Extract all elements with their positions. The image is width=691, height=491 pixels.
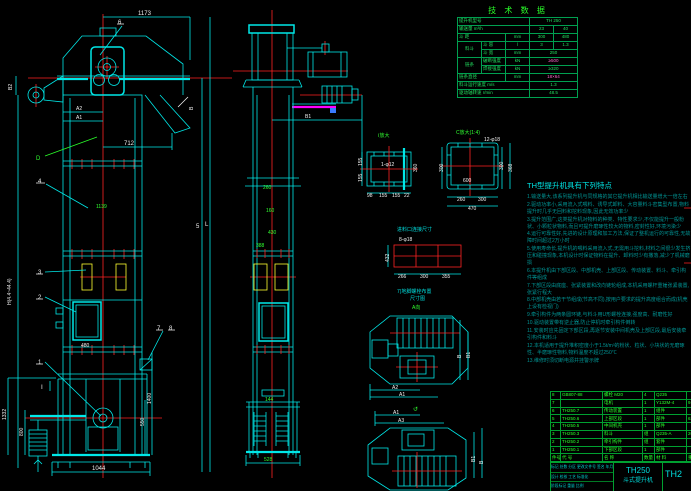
detail-c-inner: 600 — [463, 178, 472, 184]
part-no: 7 — [551, 399, 561, 407]
plan-view-top: B B1 A2 A1 — [370, 316, 472, 400]
balloon-2: 2 — [38, 295, 42, 301]
balloon-6: 6 — [118, 20, 122, 26]
table-row: 5 TH250.6 上部区段 1 部件 63.5 — [551, 415, 691, 423]
part-qty: 1 — [643, 423, 655, 431]
header-weight: 重量 — [687, 454, 691, 462]
dim-a1: A1 — [76, 115, 82, 121]
tech-data-table: 技 术 数 据 提升机型号 TH 250 输送量 m³/h 23 40 斗 距 … — [457, 5, 579, 98]
dim-left-a: 1332 — [2, 409, 8, 420]
part-name: 牵引构件 — [603, 438, 643, 446]
part-weight — [687, 407, 691, 415]
feature-line: 3.提升范围广,这类提升机对物料的种类、特性要求少,不仅能提升一般粉状、小颗粒状… — [527, 217, 691, 231]
tech-group: 链条 — [458, 58, 482, 74]
part-code: TH250.6 — [561, 415, 603, 423]
tech-value: 18×64 — [530, 74, 578, 82]
balloon-8: 8 — [169, 326, 173, 332]
outlet-detail: 进料口连接尺寸 8-φ18 432 266 300 355 — [385, 226, 461, 280]
front-view: 1173 712 A2 A1 B2 H(4.4~44.4) B 5 L 1139… — [2, 11, 232, 478]
drawing-number: TH2 — [663, 463, 691, 491]
balloon-1: 1 — [38, 360, 42, 366]
table-row: 链条 破断强度 kN ≥500 — [458, 58, 578, 66]
header-material: 材 料 — [655, 454, 687, 462]
part-no: 8 — [551, 392, 561, 400]
rotate-view-icon: ↺ — [413, 406, 418, 413]
dim-b2: B2 — [8, 84, 14, 90]
tech-value: 48.5 — [530, 90, 578, 98]
table-row: 1 TH250.1 下部区段 1 部件 — [551, 446, 691, 454]
dim-left-b: 800 — [19, 427, 25, 436]
part-no: 6 — [551, 407, 561, 415]
outlet-left: 432 — [385, 253, 391, 262]
detail-i-left-b: 155 — [358, 173, 364, 182]
revision-row: 标记 处数 分区 更改文件号 签名 年月日 — [551, 463, 613, 473]
table-row: 2 TH250.2 牵引构件 组 套件 — [551, 438, 691, 446]
part-name: 传动装置 — [603, 407, 643, 415]
tech-unit: mm — [506, 74, 530, 82]
feature-line: 10.驱动装置带有逆止器,防止停机时牵引构件倒转 — [527, 320, 691, 327]
header-name: 名 称 — [603, 454, 643, 462]
dim-boot-shaft: 550 — [140, 417, 146, 426]
balloon-7: 7 — [157, 326, 161, 332]
detail-c-view: C放大(1:4) 12-φ18 600 300 368 300 260 300 … — [439, 129, 514, 212]
part-code: TH250.3 — [561, 430, 603, 438]
part-no: 3 — [551, 430, 561, 438]
part-qty: 1 — [643, 446, 655, 454]
part-material: 部件 — [655, 423, 687, 431]
features-notes: TH型提升机具有下列特点 1.输送量大,该系列提升机与同规格的其它提升机相比输送… — [527, 180, 691, 390]
detail-i-hole: 1-φ12 — [381, 162, 394, 168]
part-code — [561, 399, 603, 407]
table-row: 7 电机 1 Y132M-4 9.06 — [551, 399, 691, 407]
detail-c-right-a: 300 — [499, 161, 505, 170]
table-row: 斗 距 mm 300 480 — [458, 34, 578, 42]
feature-line: 11.安装时应先固定下部区段,再逐节安装中间机壳及上部区段,最后安装牵引构件和料… — [527, 328, 691, 342]
table-row: 提升机型号 TH 250 — [458, 18, 578, 26]
plan-bottom-a1: A1 — [393, 410, 399, 416]
part-no: 5 — [551, 415, 561, 423]
features-title: TH型提升机具有下列特点 — [527, 180, 691, 191]
plan-bottom-a3: A3 — [398, 418, 404, 424]
cad-drawing-sheet: 1173 712 A2 A1 B2 H(4.4~44.4) B 5 L 1139… — [0, 0, 691, 491]
part-weight: 63.5 — [687, 415, 691, 423]
part-code: TH250.5 — [561, 423, 603, 431]
part-material: Q235-A — [655, 430, 687, 438]
part-weight — [687, 423, 691, 431]
part-qty: 1 — [643, 415, 655, 423]
tech-unit: mm — [506, 50, 530, 58]
part-name: 螺栓 M20 — [603, 392, 643, 400]
tech-value: 3 — [530, 42, 554, 50]
dim-side-base: 528 — [264, 457, 273, 463]
part-weight — [687, 392, 691, 400]
tech-value: ≥500 — [530, 58, 578, 66]
outlet-label: 进料口连接尺寸 — [397, 226, 432, 233]
layout-label-1: 7)地脚螺栓布置 — [397, 288, 431, 295]
detail-i-bot-a: 98 — [367, 193, 373, 199]
tech-unit: l — [506, 42, 530, 50]
part-material: Q235 — [655, 392, 687, 400]
tech-value: 1.3 — [554, 42, 578, 50]
dim-door: 480 — [81, 343, 90, 349]
part-no: 4 — [551, 423, 561, 431]
dim-pitch: 1139 — [96, 204, 107, 210]
header-no: 件号 — [551, 454, 561, 462]
tech-value: 250 — [530, 50, 578, 58]
tech-label: 破断强度 — [482, 58, 506, 66]
part-name: 料斗 — [603, 430, 643, 438]
tech-unit: kN — [506, 66, 530, 74]
plan-top-a1: A1 — [399, 392, 405, 398]
balloon-d: D — [36, 156, 41, 162]
table-row: 4 TH250.5 中间机壳 1 部件 — [551, 423, 691, 431]
part-code: GB807-88 — [561, 392, 603, 400]
tech-unit: kN — [506, 58, 530, 66]
parts-header-row: 件号 代 号 名 称 数量 材 料 重量 — [551, 454, 691, 462]
part-weight — [687, 446, 691, 454]
part-material: 部件 — [655, 415, 687, 423]
dim-side-width: 388 — [256, 243, 265, 249]
part-code: TH250.7 — [561, 407, 603, 415]
tech-value: 480 — [554, 34, 578, 42]
part-material: 部件 — [655, 446, 687, 454]
part-weight — [687, 438, 691, 446]
tech-label: 焊接强度 — [482, 66, 506, 74]
detail-i-bot-b: 155 — [379, 193, 388, 199]
detail-i-label: Ⅰ放大 — [378, 132, 389, 139]
header-qty: 数量 — [643, 454, 655, 462]
feature-line: 8.中部机壳由若干节组成(节高不同),按用户要求的提升高度组合而成(机壳上设有检… — [527, 297, 691, 311]
plan-bottom-b1: B1 — [471, 456, 477, 462]
dim-overall-width: 1173 — [138, 11, 152, 17]
outlet-holes: 8-φ18 — [399, 237, 412, 243]
dim-b1: B1 — [305, 114, 311, 120]
section-mark: Ⅰ — [41, 385, 43, 391]
feature-line: 6.本提升机由下部区段、中部机壳、上部区段、传动装置、料斗、牵引构件等组成 — [527, 268, 691, 282]
side-view: B1 260 160 430 388 144 528 — [233, 10, 362, 478]
tech-label: 输送量 m³/h — [458, 26, 530, 34]
detail-c-bot-b: 300 — [478, 197, 487, 203]
dim-side-neck: 160 — [266, 208, 275, 214]
tech-label: 驱动轴转速 r/min — [458, 90, 530, 98]
detail-i-view: Ⅰ放大 1-φ12 155 155 360 98 155 155 22 — [358, 132, 419, 199]
tech-label: 料斗运行速度 m/s — [458, 82, 530, 90]
feature-line: 7.下部区段由底座、张紧装置和改向链轮组成,本机采用螺杆重锤张紧装置,张紧行程大 — [527, 283, 691, 297]
outlet-bot-c: 355 — [442, 274, 451, 280]
tech-label: 斗 距 — [458, 34, 506, 42]
plan-top-b1: B1 — [466, 352, 472, 358]
detail-c-label: C放大(1:4) — [456, 129, 480, 136]
part-name: 电机 — [603, 399, 643, 407]
detail-i-left-a: 155 — [358, 157, 364, 166]
header-code: 代 号 — [561, 454, 603, 462]
view-a-label: A向 — [412, 304, 420, 311]
table-row: 3 TH250.3 料斗 组 Q235-A 208 — [551, 430, 691, 438]
feature-line: 1.输送量大,该系列提升机与同规格的其它提升机相比输送量增大一倍左右 — [527, 194, 691, 201]
tech-value: ≥320 — [530, 66, 578, 74]
tech-label: 斗 容 — [482, 42, 506, 50]
part-no: 1 — [551, 446, 561, 454]
part-qty: 组 — [643, 438, 655, 446]
part-qty: 组 — [643, 430, 655, 438]
title-block-revision-area: 标记 处数 分区 更改文件号 签名 年月日 设计 校核 工艺 标准化 阶段标记 … — [551, 463, 614, 491]
table-row: 输送量 m³/h 23 40 — [458, 26, 578, 34]
detail-c-holes: 12-φ18 — [484, 137, 500, 143]
part-qty: 1 — [643, 407, 655, 415]
tech-value: 300 — [530, 34, 554, 42]
part-material: 套件 — [655, 438, 687, 446]
tech-value: 40 — [554, 26, 578, 34]
part-code: TH250.2 — [561, 438, 603, 446]
detail-i-bot-d: 22 — [404, 193, 410, 199]
detail-i-right: 360 — [413, 163, 419, 172]
feature-line: 12.本机适用于提升堆积密度小于1.5t/m³的粉状、粒状、小块状的无磨琢性、半… — [527, 343, 691, 357]
dim-side-top: 260 — [263, 185, 272, 191]
stage-row: 阶段标记 重量 比例 — [551, 482, 613, 491]
balloon-3: 3 — [38, 270, 42, 276]
dim-height: H(4.4~44.4) — [7, 278, 13, 305]
model-number: TH250 — [614, 466, 662, 475]
tech-label: 提升机型号 — [458, 18, 530, 26]
detail-i-bot-c: 155 — [392, 193, 401, 199]
dim-side-plate: 144 — [265, 397, 274, 403]
part-qty: 4 — [643, 392, 655, 400]
part-no: 2 — [551, 438, 561, 446]
dim-b: B — [189, 106, 195, 110]
table-row: 驱动轴转速 r/min 48.5 — [458, 90, 578, 98]
detail-c-left: 300 — [439, 163, 445, 172]
part-qty: 1 — [643, 399, 655, 407]
tech-label: 斗 宽 — [482, 50, 506, 58]
dim-side-mid: 430 — [268, 230, 277, 236]
feature-line: 5.使用寿命长,提升机的喂料采用流入式,无需用斗挖料,材料之间很少发生挤压和碰撞… — [527, 246, 691, 267]
detail-c-bot-total: 470 — [468, 206, 477, 212]
feature-line: 4.运行可靠性好,先进的设计原理和加工方法,保证了整机运行的可靠性,无故障时间超… — [527, 231, 691, 245]
part-material: Y132M-4 — [655, 399, 687, 407]
layout-label-2: 尺寸图 — [410, 295, 425, 302]
balloon-5: 5 — [196, 224, 200, 230]
plan-top-a2: A2 — [392, 385, 398, 391]
tech-label: 链条直径 — [458, 74, 506, 82]
dim-boot-height: 1400 — [147, 393, 153, 404]
feature-line: 9.牵引构件为两条圆环链,与料斗用U形螺栓连接,强度高、耐磨性好 — [527, 312, 691, 319]
tech-value: TH 250 — [530, 18, 578, 26]
dim-base: 1044 — [92, 466, 106, 472]
signature-row: 设计 校核 工艺 标准化 — [551, 473, 613, 483]
product-name: 斗式提升机 — [614, 475, 662, 484]
tech-value: 1.3 — [530, 82, 578, 90]
plan-view-bottom: A1 A3 B1 B — [368, 410, 485, 490]
table-row: 料斗运行速度 m/s 1.3 — [458, 82, 578, 90]
tech-group: 料斗 — [458, 42, 482, 58]
title-block-name-cell: TH250 斗式提升机 — [614, 463, 663, 491]
part-weight: 208 — [687, 430, 691, 438]
part-name: 上部区段 — [603, 415, 643, 423]
tech-unit: mm — [506, 34, 530, 42]
tech-table-title: 技 术 数 据 — [457, 5, 579, 16]
parts-list-table: 8 GB807-88 螺栓 M20 4 Q235 7 电机 1 Y132M-4 … — [550, 391, 691, 462]
outlet-bot-b: 300 — [420, 274, 429, 280]
outlet-bot-a: 266 — [398, 274, 407, 280]
dim-a2: A2 — [76, 106, 82, 112]
feature-line: 2.驱动功率小,采用流入式喂料、诱导式卸料、大容量料斗密集型布置,物料提升时几乎… — [527, 202, 691, 216]
tech-value: 23 — [530, 26, 554, 34]
table-row: 8 GB807-88 螺栓 M20 4 Q235 — [551, 392, 691, 400]
dim-chute: 712 — [124, 141, 135, 147]
part-name: 下部区段 — [603, 446, 643, 454]
detail-c-bot-a: 260 — [457, 197, 466, 203]
feature-line: 13.维修时须切断电源并挂警示牌 — [527, 358, 691, 365]
part-name: 中间机壳 — [603, 423, 643, 431]
part-material: 组件 — [655, 407, 687, 415]
part-weight: 9.06 — [687, 399, 691, 407]
title-block: 标记 处数 分区 更改文件号 签名 年月日 设计 校核 工艺 标准化 阶段标记 … — [550, 462, 691, 491]
table-row: 6 TH250.7 传动装置 1 组件 — [551, 407, 691, 415]
part-code: TH250.1 — [561, 446, 603, 454]
table-row: 链条直径 mm 18×64 — [458, 74, 578, 82]
detail-c-right-b: 368 — [508, 163, 514, 172]
table-row: 料斗 斗 容 l 3 1.3 — [458, 42, 578, 50]
dim-length: L — [205, 222, 209, 228]
balloon-4: 4 — [38, 179, 42, 185]
